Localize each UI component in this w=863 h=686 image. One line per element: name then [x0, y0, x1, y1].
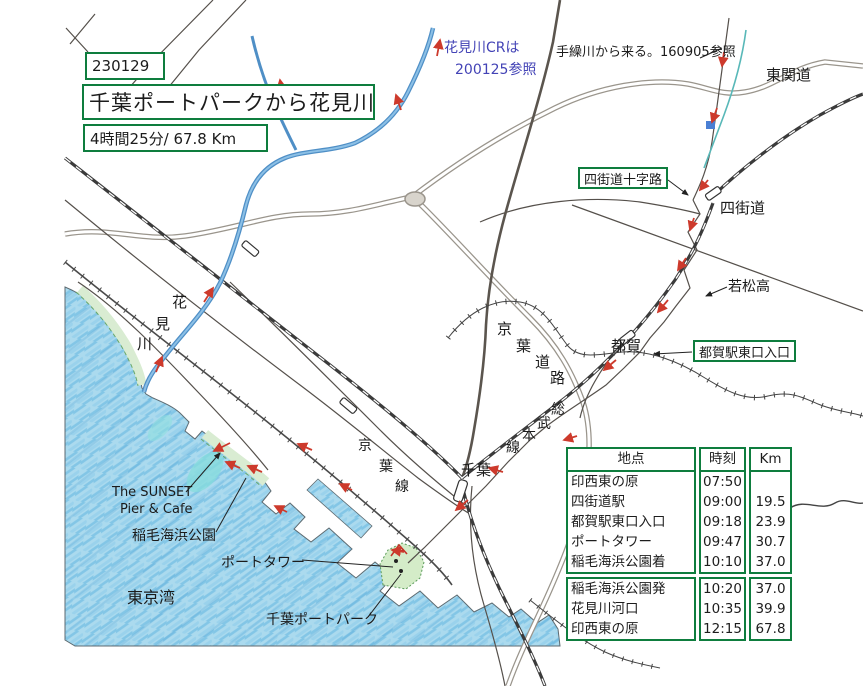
label-tokyo-bay: 東京湾	[127, 588, 175, 607]
timetable-block2: 稲毛海浜公園発 花見川河口 印西東の原 10:20 10:35 12:15 37…	[566, 577, 792, 641]
label-higashikando: 東関道	[766, 66, 811, 84]
label-keiyo-sen-char: 葉	[379, 459, 393, 475]
table-row-point: 花見川河口	[568, 599, 694, 619]
junction-label: 四街道十字路	[584, 169, 662, 188]
label-keiyo-doro-char: 路	[550, 369, 565, 387]
timetable-header-km: Km	[751, 449, 790, 472]
table-row-km	[751, 472, 790, 492]
table-row-time: 10:20	[701, 579, 744, 599]
label-keiyo-doro-char: 道	[535, 353, 550, 371]
label-keiyo-sen-char: 京	[358, 438, 372, 454]
label-hanamigawa-char: 花	[172, 293, 187, 311]
table-row-km: 19.5	[751, 492, 790, 512]
table-row-point: 印西東の原	[568, 619, 694, 639]
label-hanamigawa-cr-line1: 花見川CRは	[444, 40, 520, 56]
label-keiyo-doro-char: 葉	[516, 337, 531, 355]
table-row-time: 09:47	[701, 532, 744, 552]
duration-box: 4時間25分/ 67.8 Km	[83, 124, 268, 152]
label-sunset-line1: The SUNSET	[111, 485, 192, 500]
table-row-point: 印西東の原	[568, 472, 694, 492]
table-row-km: 23.9	[751, 512, 790, 532]
table-row-time: 10:10	[701, 552, 744, 572]
table-row-point: ポートタワー	[568, 532, 694, 552]
label-wakamatsu-high: 若松高	[728, 278, 770, 295]
timetable-block1: 地点 印西東の原 四街道駅 都賀駅東口入口 ポートタワー 稲毛海浜公園着 時刻 …	[566, 447, 792, 574]
station-marker	[339, 397, 357, 414]
label-tsuga: 都賀	[611, 337, 641, 355]
label-port-tower: ポートタワー	[221, 555, 305, 571]
table-row-km: 37.0	[751, 552, 790, 572]
label-chiba-port-park: 千葉ポートパーク	[266, 612, 378, 628]
ride-date: 230129	[92, 57, 149, 75]
table-row-point: 都賀駅東口入口	[568, 512, 694, 532]
label-sunset-line2: Pier & Cafe	[120, 502, 193, 517]
scanned-route-map-page: 花見川CRは 200125参照 手繰川から来る。160905参照 東関道 四街道…	[0, 0, 863, 686]
label-hanamigawa-char: 見	[155, 315, 170, 333]
label-sobu-honsen-char: 線	[506, 440, 520, 456]
label-sobu-honsen-char: 本	[522, 428, 536, 444]
table-row-point: 四街道駅	[568, 492, 694, 512]
label-sobu-honsen-char: 総	[551, 402, 565, 418]
route-arrow-icon	[564, 436, 577, 440]
route-arrow-icon	[437, 40, 440, 56]
yotsukaido-junction-box: 四街道十字路	[578, 167, 668, 189]
table-row-time: 09:00	[701, 492, 744, 512]
table-row-km: 37.0	[751, 579, 790, 599]
table-row-time: 12:15	[701, 619, 744, 639]
table-row-time: 10:35	[701, 599, 744, 619]
ride-duration: 4時間25分/ 67.8 Km	[90, 128, 236, 149]
table-row-km: 39.9	[751, 599, 790, 619]
table-row-time: 07:50	[701, 472, 744, 492]
label-chiba: 千葉	[461, 461, 491, 479]
hanami-river	[144, 28, 433, 392]
table-row-km: 67.8	[751, 619, 790, 639]
route-title: 千葉ポートパークから花見川	[89, 87, 375, 117]
timetable-header-point: 地点	[568, 449, 694, 472]
label-inage-park: 稲毛海浜公園	[132, 528, 216, 544]
label-sobu-honsen-char: 武	[537, 416, 551, 432]
tsuga-exit-label: 都賀駅東口入口	[699, 342, 790, 361]
table-row-time: 09:18	[701, 512, 744, 532]
table-row-km: 30.7	[751, 532, 790, 552]
label-tegurigawa-note: 手繰川から来る。160905参照	[556, 44, 736, 60]
label-yotsukaido: 四街道	[720, 199, 765, 217]
label-keiyo-doro-char: 京	[497, 320, 512, 338]
date-box: 230129	[85, 52, 165, 80]
bridge-marker	[706, 121, 715, 129]
title-box: 千葉ポートパークから花見川	[82, 84, 375, 120]
tsuga-east-exit-box: 都賀駅東口入口	[693, 340, 796, 362]
table-row-point: 稲毛海浜公園発	[568, 579, 694, 599]
timetable-header-time: 時刻	[701, 449, 744, 472]
station-marker	[241, 240, 259, 257]
label-keiyo-sen-char: 線	[395, 479, 409, 495]
label-hanamigawa-char: 川	[137, 335, 152, 353]
table-row-point: 稲毛海浜公園着	[568, 552, 694, 572]
label-hanamigawa-cr-line2: 200125参照	[455, 61, 536, 78]
